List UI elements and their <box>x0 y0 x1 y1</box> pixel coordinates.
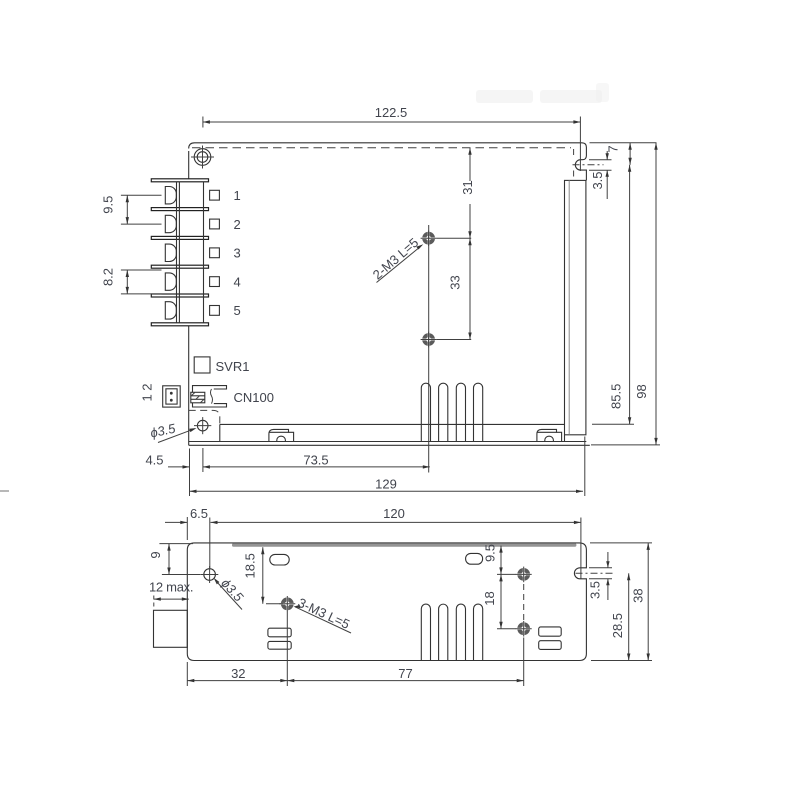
svg-text:38: 38 <box>631 588 646 602</box>
svg-text:31: 31 <box>460 180 475 194</box>
svg-text:8.2: 8.2 <box>101 268 116 286</box>
svg-text:1: 1 <box>234 188 241 203</box>
svg-text:9: 9 <box>148 551 163 558</box>
svg-text:18: 18 <box>482 591 497 605</box>
svg-text:73.5: 73.5 <box>303 453 328 468</box>
svg-text:4.5: 4.5 <box>145 453 163 468</box>
svg-text:120: 120 <box>383 506 405 521</box>
svg-text:1 2: 1 2 <box>140 383 155 401</box>
svg-text:9.5: 9.5 <box>101 196 116 214</box>
svg-text:3.5: 3.5 <box>588 581 603 599</box>
svg-text:32: 32 <box>231 666 245 681</box>
svg-text:28.5: 28.5 <box>610 613 625 638</box>
svg-text:2: 2 <box>234 217 241 232</box>
svg-text:7: 7 <box>606 145 621 152</box>
svg-text:12 max.: 12 max. <box>149 580 193 595</box>
svg-text:3.5: 3.5 <box>590 171 605 189</box>
svg-text:9.5: 9.5 <box>482 544 497 562</box>
svg-text:6.5: 6.5 <box>190 506 208 521</box>
svg-text:SVR1: SVR1 <box>216 359 250 374</box>
svg-text:85.5: 85.5 <box>609 384 624 409</box>
svg-text:CN100: CN100 <box>234 390 274 405</box>
svg-text:122.5: 122.5 <box>375 105 408 120</box>
svg-text:33: 33 <box>448 275 463 289</box>
svg-text:129: 129 <box>375 477 397 492</box>
svg-text:18.5: 18.5 <box>242 553 257 578</box>
svg-text:4: 4 <box>234 274 241 289</box>
svg-text:3: 3 <box>234 246 241 261</box>
svg-text:98: 98 <box>634 384 649 398</box>
svg-text:5: 5 <box>234 303 241 318</box>
svg-text:77: 77 <box>398 666 412 681</box>
